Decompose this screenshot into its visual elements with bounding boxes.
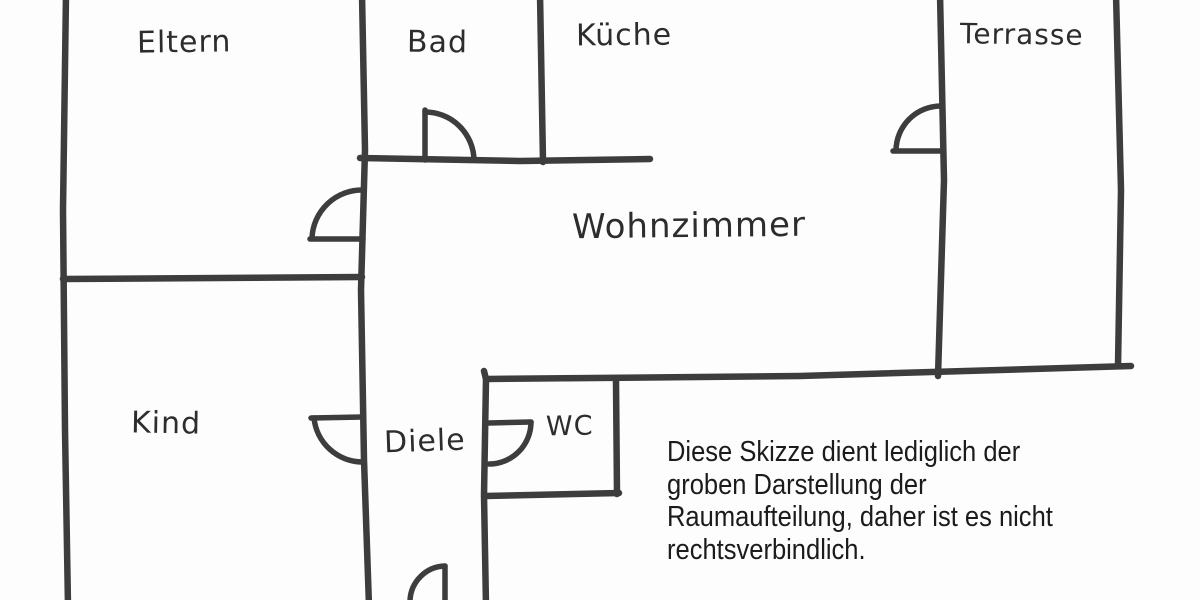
door-wc-arc <box>489 422 531 464</box>
wall-terrasse-right <box>1116 0 1121 366</box>
door-bad <box>425 110 474 160</box>
door-terrasse <box>893 106 941 151</box>
wall-diele-wc <box>484 379 486 600</box>
door-wc <box>489 422 531 464</box>
wall-wohnzimmer-bottom <box>484 366 1131 379</box>
wall-bad-bottom <box>360 158 650 161</box>
room-label-diele: Diele <box>383 423 466 461</box>
wall-bad-kueche-divider <box>540 0 543 162</box>
door-entry <box>410 566 445 600</box>
disclaimer-line: Diese Skizze dient lediglich der <box>667 436 1160 469</box>
door-kind <box>311 417 363 462</box>
wall-eltern-bottom <box>63 277 362 279</box>
door-terrasse-arc <box>896 106 941 150</box>
door-kind-arc <box>314 418 363 462</box>
door-eltern <box>310 190 363 239</box>
room-label-bad: Bad <box>407 25 468 61</box>
door-wc-leaf <box>489 422 531 423</box>
room-label-kind: Kind <box>131 405 202 441</box>
door-eltern-arc <box>312 190 363 238</box>
disclaimer-line: Raumaufteilung, daher ist es nicht <box>667 501 1160 534</box>
wall-terrasse-left <box>938 0 944 376</box>
room-label-wohnzimmer: Wohnzimmer <box>572 205 806 247</box>
door-entry-arc <box>410 566 445 600</box>
wall-wc-bottom <box>485 493 619 496</box>
door-kind-leaf <box>311 417 363 418</box>
disclaimer-line: groben Darstellung der <box>667 469 1160 502</box>
room-label-wc: WC <box>546 411 594 443</box>
wall-outer-left <box>63 0 68 600</box>
floor-plan-sketch: Eltern Bad Küche Terrasse Wohnzimmer Kin… <box>0 0 1200 600</box>
wall-eltern-diele <box>361 0 369 600</box>
room-label-terrasse: Terrasse <box>960 17 1084 52</box>
wall-wc-right <box>616 381 617 494</box>
disclaimer-line: rechtsverbindlich. <box>667 534 1160 567</box>
disclaimer-text: Diese Skizze dient lediglich der groben … <box>667 436 1160 566</box>
room-label-eltern: Eltern <box>137 24 232 60</box>
room-label-kueche: Küche <box>576 18 672 54</box>
door-bad-arc <box>425 112 474 160</box>
